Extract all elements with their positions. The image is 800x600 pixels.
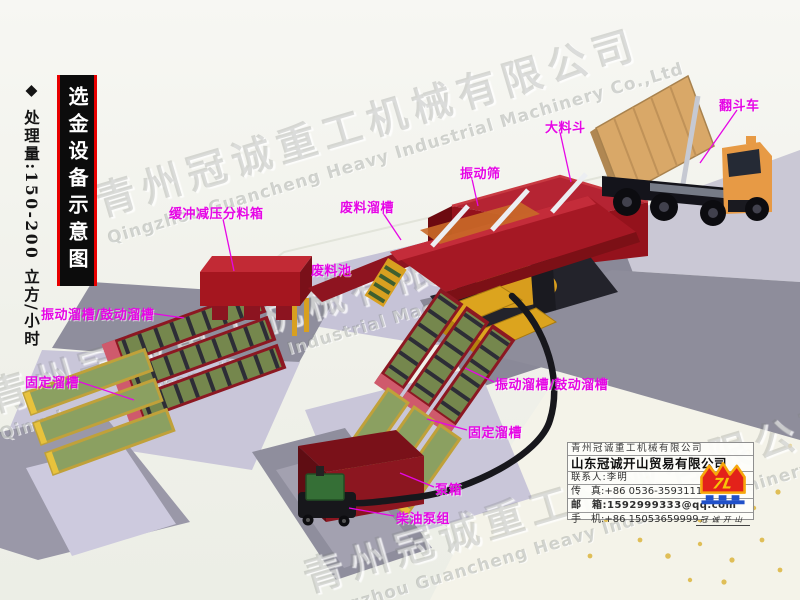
contact-company-primary: 青州冠诚重工机械有限公司	[568, 443, 753, 456]
mobile-value: +86 15053659999	[604, 514, 698, 526]
mobile-label: 手 机:	[571, 514, 604, 526]
buffer-distribution-box	[200, 256, 312, 336]
label-waste-pool: 废料池	[311, 260, 352, 279]
label-vibrating-screen: 振动筛	[460, 163, 501, 182]
logo-mark: 7L	[711, 475, 733, 492]
label-vibrating-sluice-right: 振动溜槽/鼓动溜槽	[495, 374, 608, 393]
company-logo: 7L 冠诚开山	[696, 458, 750, 526]
label-diesel-pump-unit: 柴油泵组	[396, 508, 450, 527]
pump-trench	[252, 428, 432, 580]
label-fixed-sluice-right: 固定溜槽	[468, 422, 522, 441]
fax-value: +86 0536-3593111	[604, 486, 702, 498]
label-dump-truck: 翻斗车	[719, 95, 760, 114]
label-waste-chute: 废料溜槽	[340, 197, 394, 216]
left-trench	[52, 282, 335, 368]
truck-ground-slope	[548, 150, 800, 282]
middle-vibrating-sluices	[374, 288, 515, 435]
diesel-pump-machine	[298, 466, 356, 527]
capacity-note: ◆ 处理量:150-200 立方/小时	[20, 80, 42, 380]
watermark-cn: 青州冠诚重工机械有限公司	[88, 2, 680, 228]
hill-face	[430, 270, 800, 440]
fax-label: 传 真:	[571, 486, 604, 498]
label-buffer-divider-box: 缓冲减压分料箱	[169, 203, 264, 222]
hopper	[428, 176, 648, 268]
contact-person-value: 李明	[607, 473, 628, 484]
label-pump-box: 泵箱	[435, 479, 462, 498]
crown-logo-icon: 7L	[698, 458, 748, 510]
waste-pool-plane	[172, 227, 757, 345]
contact-person-label: 联系人:	[571, 473, 607, 484]
schematic-page: 青州冠诚重工机械有限公司 Qingzhou Guancheng Heavy In…	[0, 0, 800, 600]
yellow-distributor	[365, 258, 556, 366]
slurry-pipe	[350, 296, 554, 503]
left-fixed-sluices	[24, 350, 174, 474]
logo-caption: 冠诚开山	[696, 515, 750, 526]
email-label: 邮 箱:	[571, 500, 607, 512]
contact-card: 青州冠诚重工机械有限公司 山东冠诚开山贸易有限公司 联系人:李明 传 真:+86…	[567, 442, 754, 520]
page-title: 选金设备示意图	[57, 75, 97, 286]
label-big-hopper: 大料斗	[545, 117, 586, 136]
label-vibrating-sluice-left: 振动溜槽/鼓动溜槽	[41, 304, 154, 323]
